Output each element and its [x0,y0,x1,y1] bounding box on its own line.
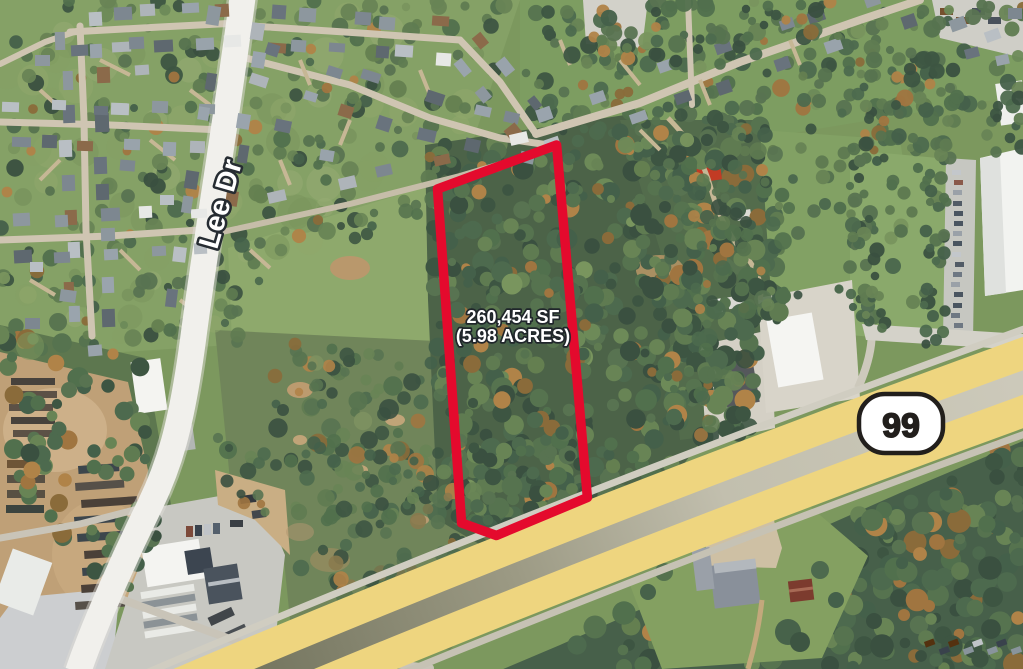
svg-text:99: 99 [882,407,920,445]
svg-text:(5.98 ACRES): (5.98 ACRES) [456,326,570,346]
svg-text:260,454 SF: 260,454 SF [466,307,559,327]
